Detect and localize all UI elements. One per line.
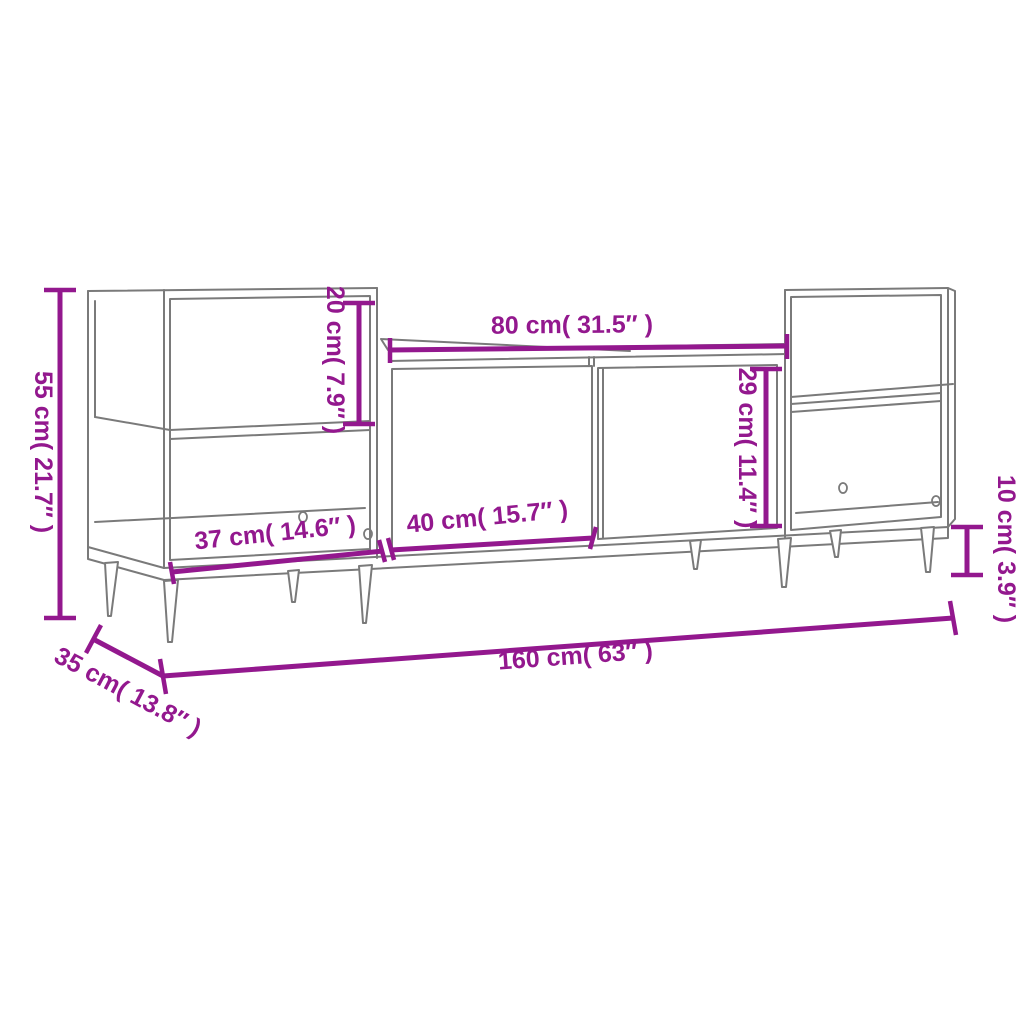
leg xyxy=(288,570,299,602)
product-dimension-diagram: 55 cm( 21.7″ ) 20 cm( 7.9″ ) 80 cm( 31.5… xyxy=(0,0,1024,1024)
leg xyxy=(830,530,841,557)
dim-leg-height: 10 cm( 3.9″ ) xyxy=(951,475,1020,623)
dim-leg-height-label: 10 cm( 3.9″ ) xyxy=(992,475,1020,623)
cabinet-line-art xyxy=(88,288,955,642)
dim-door-height: 29 cm( 11.4″ ) xyxy=(733,368,782,529)
dim-side-compartment-width-label: 37 cm( 14.6″ ) xyxy=(193,511,357,556)
dim-overall-width: 160 cm( 63″ ) xyxy=(160,601,956,694)
leg xyxy=(105,562,118,616)
diagram-canvas: 55 cm( 21.7″ ) 20 cm( 7.9″ ) 80 cm( 31.5… xyxy=(0,0,1024,1024)
cable-hole xyxy=(839,483,847,493)
dim-overall-height-label: 55 cm( 21.7″ ) xyxy=(29,371,57,533)
right-shelf-unit xyxy=(785,288,955,537)
leg xyxy=(921,527,934,572)
dim-door-height-label: 29 cm( 11.4″ ) xyxy=(733,368,761,529)
dim-overall-width-label: 160 cm( 63″ ) xyxy=(497,636,654,675)
dim-center-top-width-label: 80 cm( 31.5″ ) xyxy=(491,310,653,339)
dim-overall-height: 55 cm( 21.7″ ) xyxy=(29,290,76,618)
dim-upper-shelf-height: 20 cm( 7.9″ ) xyxy=(321,286,375,434)
leg xyxy=(690,540,701,569)
cable-hole xyxy=(932,496,940,506)
dim-door-width-label: 40 cm( 15.7″ ) xyxy=(405,495,569,538)
dim-upper-shelf-height-label: 20 cm( 7.9″ ) xyxy=(321,286,349,434)
right-unit-shelf xyxy=(791,384,953,412)
dim-door-width: 40 cm( 15.7″ ) xyxy=(391,495,596,550)
leg xyxy=(359,565,372,623)
leg xyxy=(778,538,791,587)
leg xyxy=(164,580,178,642)
dim-depth: 35 cm( 13.8″ ) xyxy=(50,625,206,742)
dimension-annotations: 55 cm( 21.7″ ) 20 cm( 7.9″ ) 80 cm( 31.5… xyxy=(29,286,1020,742)
